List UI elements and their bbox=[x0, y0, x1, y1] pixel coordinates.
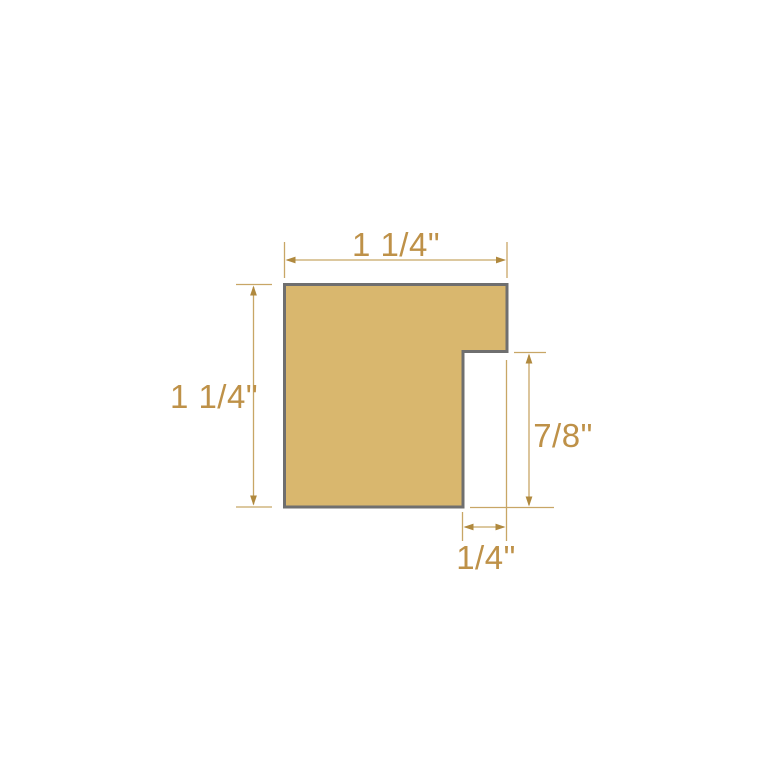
arrow-left-icon bbox=[464, 524, 474, 531]
rabbet-height-dimension-label: 7/8" bbox=[533, 417, 593, 454]
moulding-profile-shape bbox=[285, 285, 508, 508]
arrow-left-icon bbox=[286, 257, 296, 264]
width-dimension-label: 1 1/4" bbox=[352, 226, 440, 263]
arrow-down-icon bbox=[250, 496, 257, 506]
diagram-canvas: 1 1/4" 1 1/4" 7/8" 1/4" bbox=[0, 0, 768, 768]
height-dimension-label: 1 1/4" bbox=[170, 378, 258, 415]
arrow-right-icon bbox=[496, 257, 506, 264]
moulding-dimension-diagram: 1 1/4" 1 1/4" 7/8" 1/4" bbox=[0, 0, 768, 768]
rabbet-width-dimension-label: 1/4" bbox=[456, 539, 516, 576]
arrow-up-icon bbox=[250, 286, 257, 296]
rabbet-width-dimension bbox=[463, 360, 507, 541]
arrow-down-icon bbox=[526, 497, 533, 507]
arrow-up-icon bbox=[526, 354, 533, 364]
arrow-right-icon bbox=[496, 524, 506, 531]
